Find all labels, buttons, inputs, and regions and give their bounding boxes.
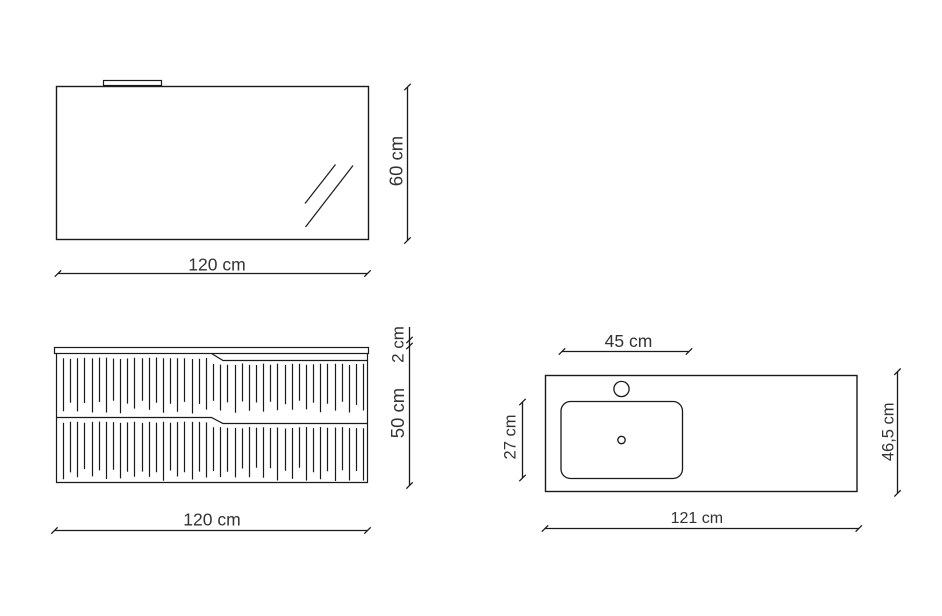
svg-text:27 cm: 27 cm [502,415,520,460]
svg-text:121 cm: 121 cm [671,510,723,527]
svg-text:46,5 cm: 46,5 cm [879,402,897,461]
svg-text:2 cm: 2 cm [388,326,407,363]
svg-text:50 cm: 50 cm [387,388,408,438]
svg-text:60 cm: 60 cm [385,136,406,186]
svg-text:45 cm: 45 cm [605,331,653,351]
svg-text:120 cm: 120 cm [183,510,240,530]
svg-text:120 cm: 120 cm [188,255,245,275]
